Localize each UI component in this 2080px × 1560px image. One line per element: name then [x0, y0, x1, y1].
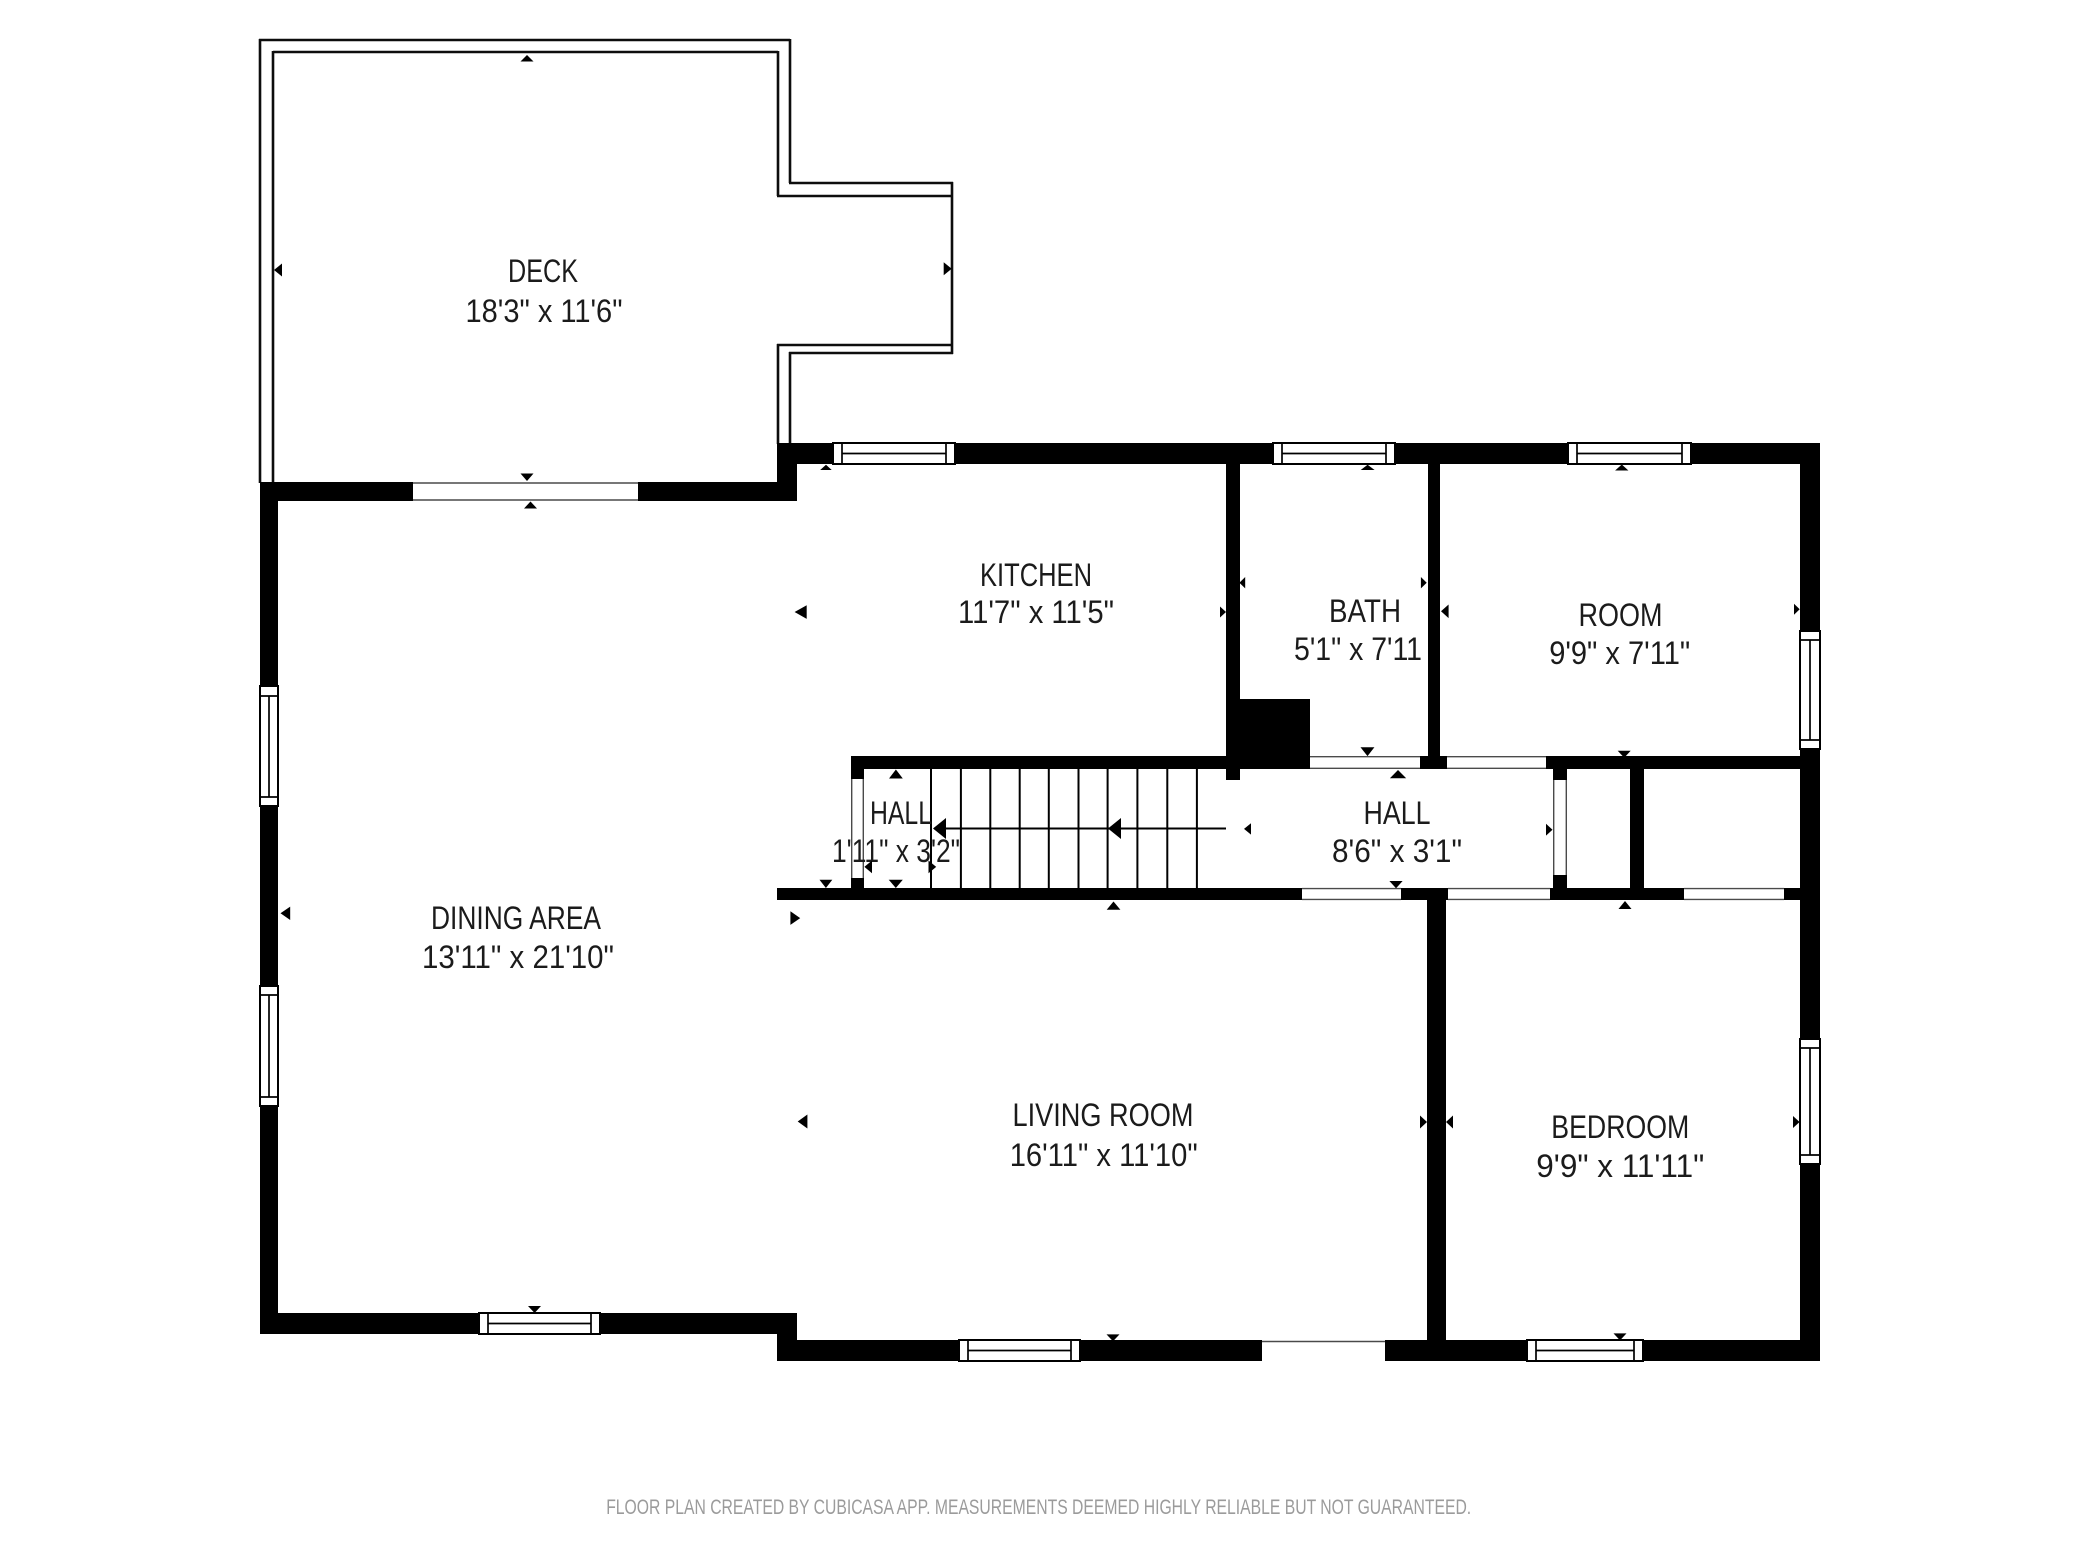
svg-text:BEDROOM: BEDROOM [1551, 1109, 1689, 1145]
svg-text:13'11" x 21'10": 13'11" x 21'10" [422, 939, 614, 975]
svg-text:18'3" x 11'6": 18'3" x 11'6" [466, 293, 623, 329]
svg-text:HALL: HALL [1364, 795, 1431, 831]
svg-text:HALL: HALL [870, 795, 932, 831]
svg-text:1'11" x 3'2": 1'11" x 3'2" [832, 833, 960, 869]
svg-text:ROOM: ROOM [1579, 597, 1663, 633]
svg-text:DECK: DECK [508, 253, 578, 289]
svg-text:9'9" x 7'11": 9'9" x 7'11" [1549, 635, 1690, 671]
svg-text:FLOOR PLAN CREATED BY CUBICASA: FLOOR PLAN CREATED BY CUBICASA APP. MEAS… [606, 1496, 1471, 1519]
svg-text:11'7" x 11'5": 11'7" x 11'5" [958, 594, 1114, 630]
svg-text:8'6" x 3'1": 8'6" x 3'1" [1332, 833, 1462, 869]
svg-text:DINING AREA: DINING AREA [431, 900, 602, 936]
svg-text:KITCHEN: KITCHEN [980, 557, 1092, 593]
svg-text:BATH: BATH [1329, 593, 1401, 629]
svg-text:5'1" x 7'11: 5'1" x 7'11 [1294, 631, 1422, 667]
svg-text:16'11" x 11'10": 16'11" x 11'10" [1010, 1137, 1198, 1173]
svg-text:9'9" x 11'11": 9'9" x 11'11" [1536, 1148, 1704, 1184]
svg-text:LIVING ROOM: LIVING ROOM [1013, 1097, 1194, 1133]
